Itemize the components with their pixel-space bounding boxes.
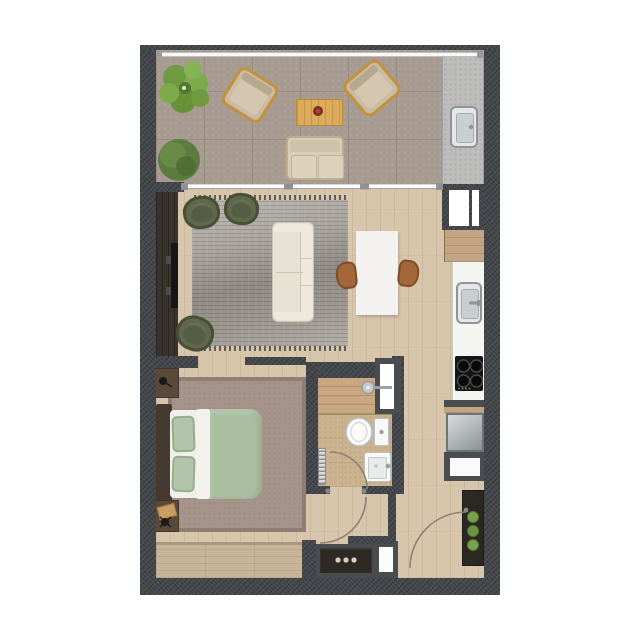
wall-top-edge (140, 45, 500, 50)
wall-bathroom-left (306, 362, 318, 494)
nightstand-top (152, 368, 179, 398)
shower-glass-niche (380, 364, 394, 409)
kitchen-wall-stub (444, 400, 484, 407)
sofa-cushion (291, 155, 317, 179)
wall-right (484, 45, 500, 595)
balustrade-post (477, 51, 483, 58)
wall-bedroom-hall-stub (302, 540, 316, 578)
plant-shelf (462, 490, 484, 566)
armchair-seat (189, 201, 214, 223)
rug-fringe-bottom (194, 346, 346, 351)
wall-left (140, 45, 156, 595)
bed-duvet (210, 409, 262, 499)
coffee-table (296, 99, 343, 126)
tv-bracket (166, 287, 171, 295)
wall-bedroom-top-left (156, 356, 198, 368)
sofa-cushion (318, 155, 344, 179)
sofa-armrest-top (274, 224, 312, 232)
bed-pillow (171, 416, 195, 453)
dining-table (356, 231, 398, 315)
console-dresser (320, 548, 372, 573)
armchair-seat (230, 199, 253, 219)
sofa-back-divider (301, 258, 312, 259)
wall-terrace-living (156, 182, 184, 192)
wall-bedroom-top-right (245, 357, 306, 365)
floor-plan (0, 0, 640, 640)
kitchen-window-pane (449, 190, 469, 226)
tv (171, 243, 178, 308)
wall-hall-bottom (348, 536, 396, 544)
appliance-niche (450, 458, 480, 476)
kitchen-sink-basin (461, 289, 479, 319)
toilet-tank (374, 418, 389, 446)
wall-bottom (140, 578, 500, 595)
sofa-seat-divider (276, 272, 303, 273)
tv-bracket (166, 256, 171, 264)
refrigerator (446, 413, 484, 452)
sofa-armrest-bottom (274, 312, 312, 320)
terrace-balustrade (158, 52, 482, 57)
cooktop (455, 356, 483, 391)
bed-duvet-fold (196, 409, 211, 499)
sofa-back-divider (301, 285, 312, 286)
rug-fringe-top (194, 195, 346, 200)
kitchen-window-pane (472, 190, 479, 226)
wall-bathroom-bottom-left (306, 486, 330, 494)
kitchen-upper-cabinet (444, 230, 485, 262)
washbasin-bowl (368, 457, 387, 479)
bed-pillow (171, 456, 195, 493)
wardrobe (156, 542, 302, 578)
sofa-cream (272, 222, 314, 322)
entry-door-leaf (379, 547, 393, 572)
outdoor-sofa (286, 136, 344, 180)
wall-hall-right (388, 494, 396, 538)
wall-bathroom-bottom-right (362, 486, 404, 494)
balustrade-post (156, 51, 162, 58)
outdoor-sink-basin (456, 113, 474, 143)
armchair-seat (180, 320, 210, 348)
towel-radiator (318, 448, 326, 485)
sofa-back (290, 140, 340, 152)
